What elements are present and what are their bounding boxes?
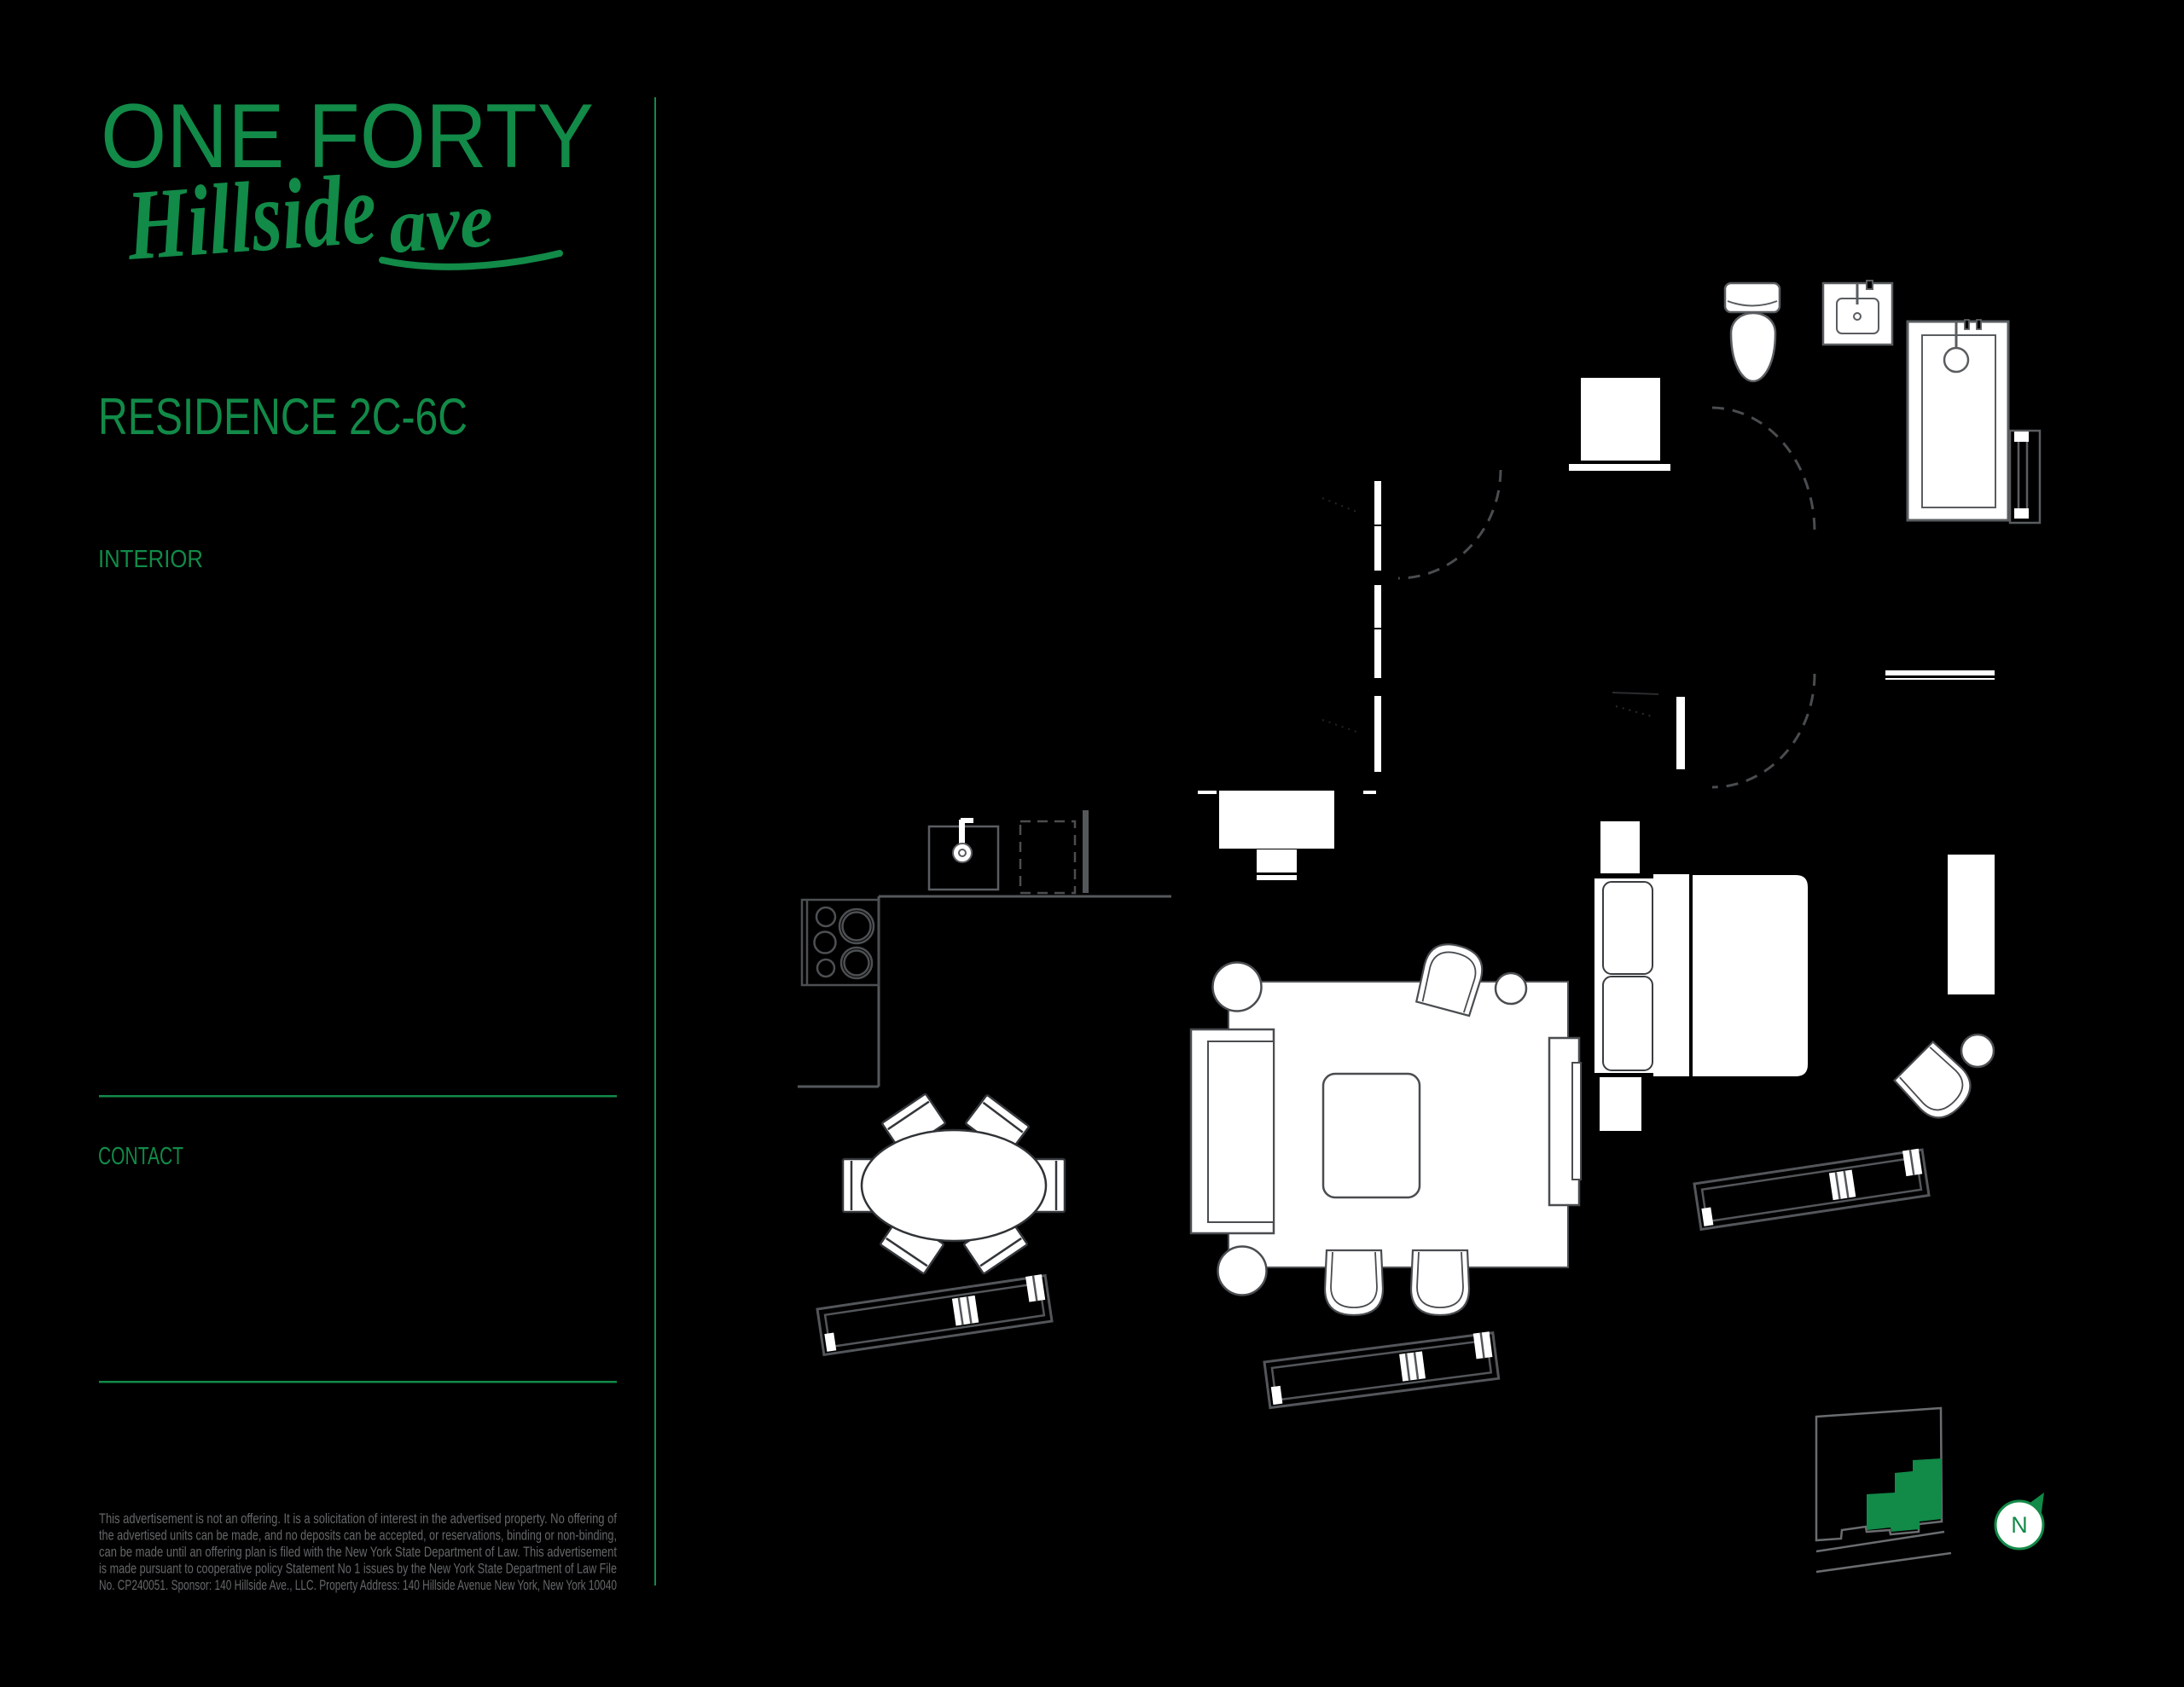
svg-text:N: N xyxy=(2011,1512,2028,1538)
svg-text:This advertisement is not an o: This advertisement is not an offering. I… xyxy=(99,1511,617,1527)
svg-text:the advertised units can be ma: the advertised units can be made, and no… xyxy=(99,1528,617,1544)
svg-text:RESIDENCE 2C-6C: RESIDENCE 2C-6C xyxy=(98,388,468,445)
svg-text:Hillside: Hillside xyxy=(123,153,380,281)
svg-text:No. CP240051. Sponsor: 140 Hil: No. CP240051. Sponsor: 140 Hillside Ave.… xyxy=(99,1578,617,1593)
svg-text:is made pursuant to cooperativ: is made pursuant to cooperative policy S… xyxy=(99,1562,617,1577)
svg-text:can be made until an offering: can be made until an offering plan is fi… xyxy=(99,1545,617,1560)
svg-text:CONTACT: CONTACT xyxy=(98,1143,183,1170)
svg-text:ave: ave xyxy=(386,176,496,270)
svg-text:INTERIOR: INTERIOR xyxy=(98,546,203,573)
